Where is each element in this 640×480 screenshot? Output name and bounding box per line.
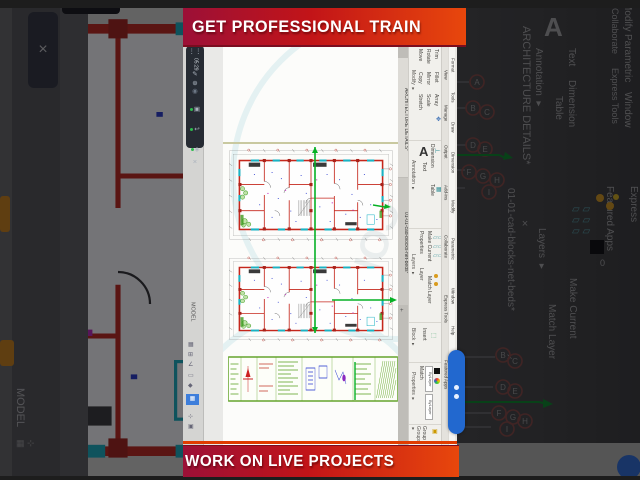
panel-modify-label[interactable]: Modify ▾ — [410, 70, 415, 92]
tab-collaborate[interactable]: Collaborate — [443, 235, 448, 258]
menu-draw[interactable]: Draw — [450, 122, 455, 133]
cad-screenshot: MODEL ▦⊞∠▭◆ ▦ ⊹▣ COM — [183, 0, 457, 480]
file-tab[interactable]: 01-01-cad-blocks-net-beds* — [398, 178, 408, 305]
top-dark-strip — [0, 0, 640, 8]
layers-properties[interactable]: Properties — [418, 231, 423, 254]
modify-stretch[interactable]: Stretch — [417, 94, 422, 110]
tab-view[interactable]: View — [443, 70, 448, 80]
group-icon[interactable]: ▣ — [432, 428, 438, 435]
bulb-icon[interactable] — [434, 274, 438, 278]
drag-handle-icon[interactable]: ⋮⋮ — [189, 49, 202, 56]
ribbon: Modify ▾ Move Copy Stretch Rotate Mirror… — [408, 0, 442, 480]
banner-divider-line — [183, 441, 457, 444]
close-icon[interactable]: × — [193, 158, 197, 166]
blue-scroll-pill[interactable] — [448, 350, 465, 434]
cad-drawing-area[interactable]: COM — [223, 0, 398, 480]
properties-match[interactable]: Match — [418, 366, 423, 380]
modify-scale[interactable]: Scale — [425, 94, 430, 107]
pill-dot — [454, 385, 459, 390]
panel-layers-label[interactable]: Layers ▾ — [410, 254, 415, 276]
banner-top: GET PROFESSIONAL TRAIN — [183, 8, 466, 47]
statusbar-icons[interactable]: ▦⊞∠▭◆ — [188, 340, 194, 391]
annotation-dimension[interactable]: Dimension — [429, 144, 434, 168]
pen-icon[interactable]: ✎ — [192, 72, 197, 79]
layers-make-current[interactable]: Make Current — [426, 231, 431, 261]
bylayer-dropdown[interactable]: ByLayer — [425, 366, 433, 392]
video-frame: × MODEL ▦ ⊹ ARCHITECTURE DETAILS* × 01-0… — [0, 0, 640, 480]
recorder-toolbar: ⋮⋮ 05:29 ✎ ⊕ ◉ ▣ ↩ ◈ × — [186, 46, 204, 148]
tab-express-tools[interactable]: Express Tools — [443, 295, 448, 323]
menu-modify[interactable]: Modify — [450, 200, 455, 213]
annotation-table[interactable]: Table — [429, 184, 434, 196]
groups-group[interactable]: Group — [421, 426, 426, 440]
color-swatch[interactable] — [434, 368, 440, 374]
statusbar-icons-2[interactable]: ⊹▣ — [188, 412, 194, 432]
menu-format[interactable]: Format — [450, 58, 455, 72]
tab-output[interactable]: Output — [443, 145, 448, 159]
tab-featured-apps[interactable]: Featured Apps — [443, 360, 448, 389]
modify-trim[interactable]: Trim — [433, 49, 438, 59]
panel-annotation: Annotation ▾ A Text Dimension Table ⊢⊣ ▦ — [409, 140, 442, 229]
panel-properties: Properties ▾ Match ByLayer ByLayer — [409, 362, 442, 425]
layers-match-layer[interactable]: Match Layer — [426, 276, 431, 304]
menu-tools[interactable]: Tools — [450, 92, 455, 103]
tab-add-ins[interactable]: Add-ins — [443, 185, 448, 200]
recording-timer: 05:29 — [193, 58, 198, 71]
banner-top-text: GET PROFESSIONAL TRAIN — [192, 17, 421, 37]
undo-item[interactable]: ↩ — [190, 118, 199, 136]
panel-block-label[interactable]: Block ▾ — [410, 328, 415, 348]
layers-layer[interactable]: Layer — [418, 268, 423, 281]
circle-tool-icon[interactable]: ◉ — [192, 89, 198, 96]
record-item[interactable]: ▣ — [190, 98, 200, 116]
modify-copy[interactable]: Copy — [417, 72, 422, 84]
bulb-icon[interactable] — [434, 282, 438, 286]
pill-dot — [454, 394, 459, 399]
panel-modify: Modify ▾ Move Copy Stretch Rotate Mirror… — [409, 46, 442, 141]
panel-block: Block ▾ Insert ⬚ — [409, 322, 442, 363]
panel-layers: Layers ▾ Properties Layer Make Current M… — [409, 228, 442, 323]
save-item[interactable]: ◈ — [191, 138, 200, 156]
color-wheel-icon[interactable] — [434, 378, 440, 384]
banner-bottom: WORK ON LIVE PROJECTS — [183, 445, 459, 477]
modify-rotate[interactable]: Rotate — [425, 49, 430, 64]
modify-mirror[interactable]: Mirror — [425, 72, 430, 85]
modify-array[interactable]: Array — [433, 94, 438, 106]
statusbar-active-toggle[interactable]: ▦ — [186, 394, 199, 405]
panel-properties-label[interactable]: Properties ▾ — [410, 372, 415, 402]
block-insert[interactable]: Insert — [421, 328, 426, 341]
menu-parametric[interactable]: Parametric — [450, 238, 455, 260]
text-style-icon[interactable]: A — [419, 144, 428, 159]
cad-commandline[interactable] — [204, 0, 224, 480]
menu-help[interactable]: Help — [450, 326, 455, 335]
banner-bottom-text: WORK ON LIVE PROJECTS — [185, 453, 394, 471]
tab-manage[interactable]: Manage — [443, 105, 448, 121]
bylayer-dropdown[interactable]: ByLayer — [425, 394, 433, 420]
crosshair-icon[interactable]: ⊕ — [192, 81, 197, 88]
menu-dimension[interactable]: Dimension — [450, 152, 455, 173]
new-tab-button[interactable]: + — [400, 308, 404, 314]
insert-block-icon[interactable]: ⬚ — [431, 332, 437, 339]
model-tab[interactable]: MODEL — [189, 302, 195, 322]
file-tab-bar: ARCHITECTURE DETAILS* 01-01-cad-blocks-n… — [398, 0, 408, 480]
green-markup — [223, 0, 398, 480]
annotation-text[interactable]: Text — [421, 162, 426, 171]
menu-window[interactable]: Window — [450, 288, 455, 304]
file-tab-active[interactable]: ARCHITECTURE DETAILS* — [398, 58, 408, 177]
panel-annotation-label[interactable]: Annotation ▾ — [410, 160, 415, 191]
modify-fillet[interactable]: Fillet — [433, 72, 438, 83]
